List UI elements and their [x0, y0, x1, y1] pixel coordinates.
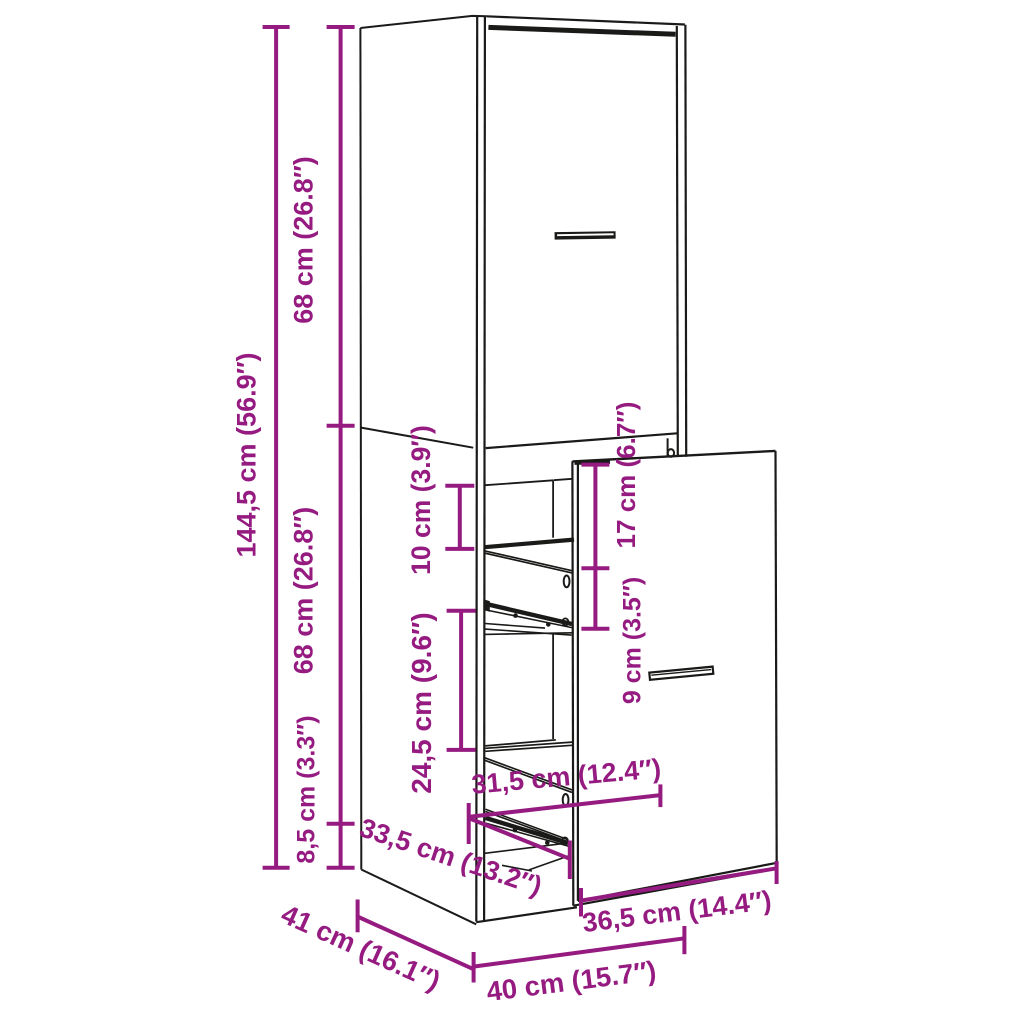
- svg-text:68 cm (26.8″): 68 cm (26.8″): [289, 507, 319, 675]
- svg-text:10 cm (3.9″): 10 cm (3.9″): [406, 425, 436, 575]
- svg-text:9 cm (3.5″): 9 cm (3.5″): [618, 577, 646, 704]
- svg-text:17 cm (6.7″): 17 cm (6.7″): [611, 402, 641, 549]
- svg-text:68 cm (26.8″): 68 cm (26.8″): [289, 156, 319, 324]
- svg-text:8,5 cm (3.3″): 8,5 cm (3.3″): [293, 715, 321, 863]
- svg-text:144,5 cm (56.9″): 144,5 cm (56.9″): [232, 352, 262, 557]
- svg-text:24,5 cm (9.6″): 24,5 cm (9.6″): [406, 612, 437, 794]
